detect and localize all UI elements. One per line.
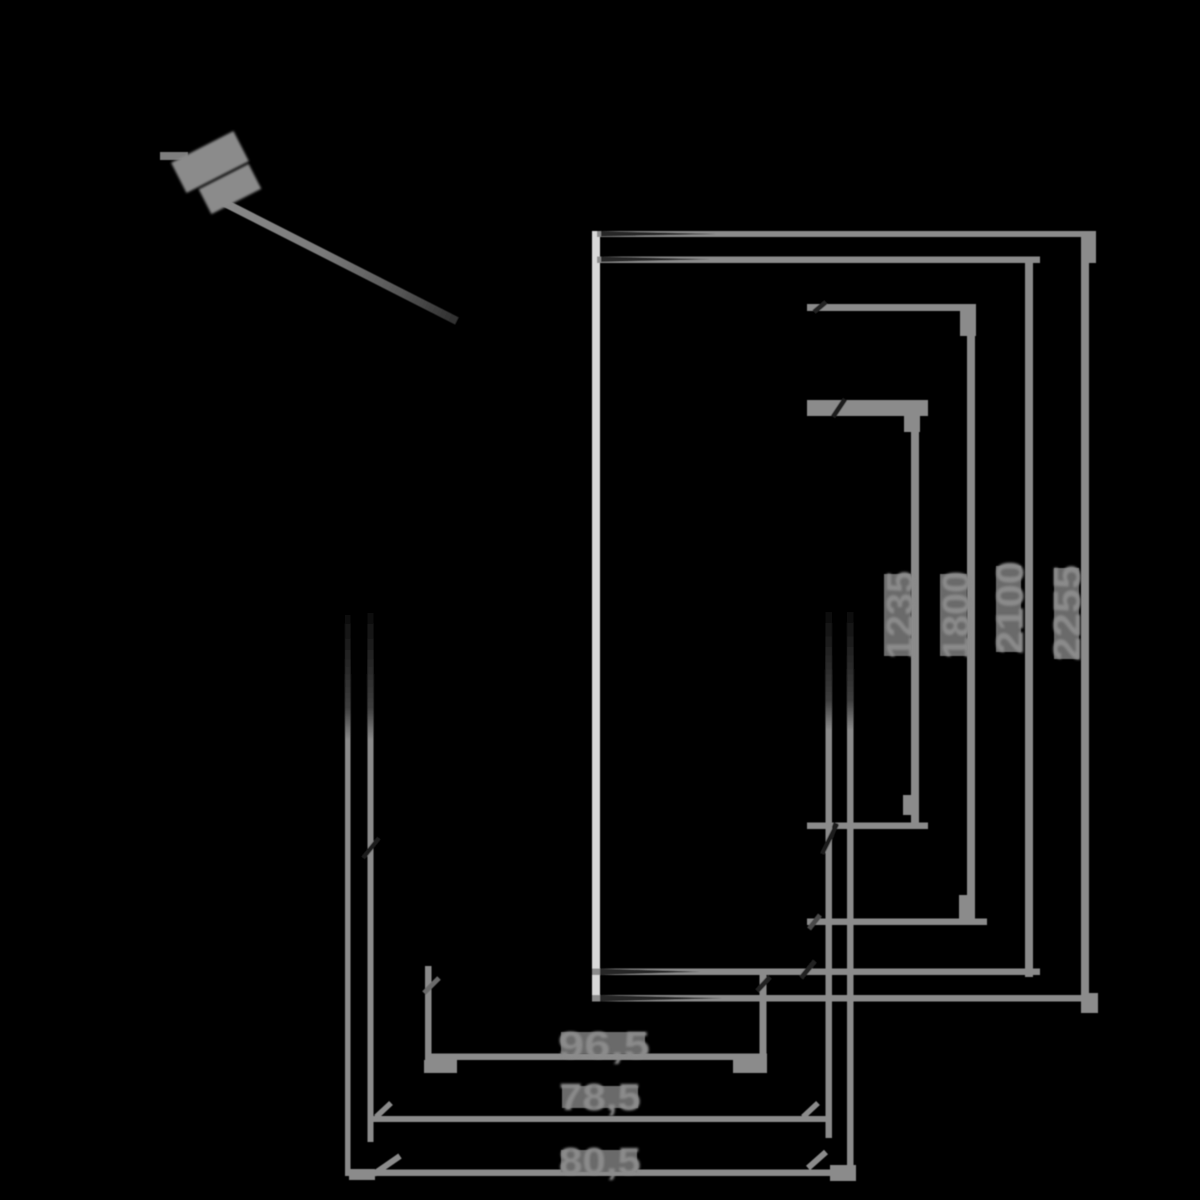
svg-text:78,5: 78,5 [559,1077,641,1119]
svg-text:1800: 1800 [936,571,978,659]
svg-text:1235: 1235 [880,571,922,659]
svg-text:80,5: 80,5 [559,1141,641,1183]
svg-text:96,5: 96,5 [558,1025,650,1067]
svg-text:2255: 2255 [1047,565,1089,661]
svg-text:2100: 2100 [990,561,1032,654]
